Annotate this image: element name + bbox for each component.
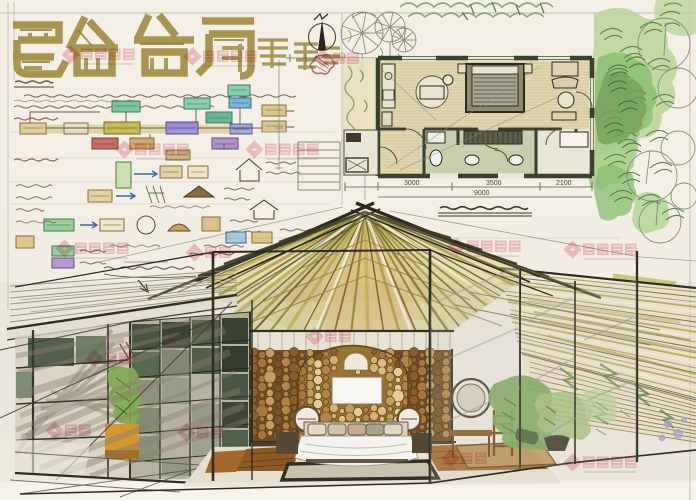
svg-text:3000: 3000 [404,180,420,187]
svg-text:2100: 2100 [556,180,572,187]
svg-text:9000: 9000 [474,190,490,197]
svg-text:3500: 3500 [486,180,502,187]
